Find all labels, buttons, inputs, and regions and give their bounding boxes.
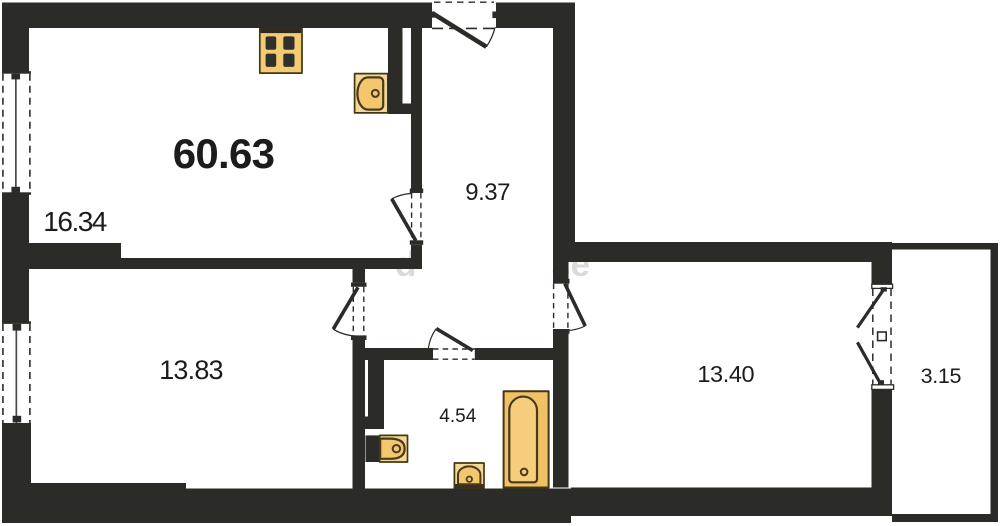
- svg-text:13.83: 13.83: [159, 355, 223, 385]
- svg-text:16.34: 16.34: [43, 206, 106, 237]
- svg-text:13.40: 13.40: [697, 361, 754, 387]
- svg-text:9.37: 9.37: [465, 179, 510, 206]
- svg-text:3.15: 3.15: [921, 364, 962, 388]
- svg-text:4.54: 4.54: [439, 406, 476, 427]
- svg-text:60.63: 60.63: [173, 130, 275, 177]
